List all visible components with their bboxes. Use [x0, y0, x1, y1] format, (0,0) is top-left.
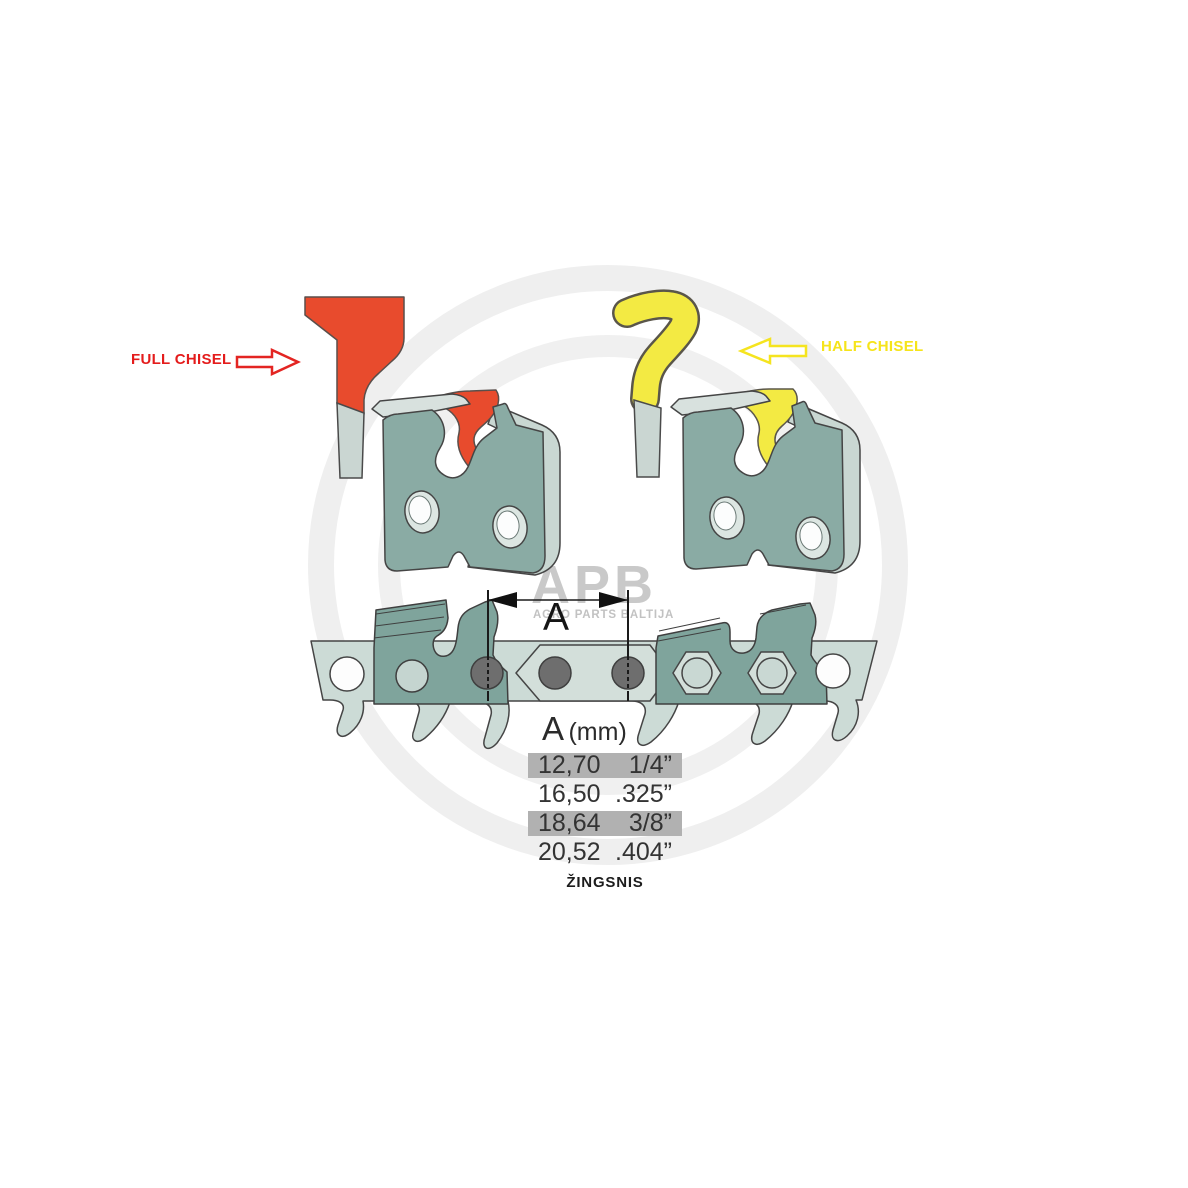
pitch-table-header-unit: (mm) [568, 718, 626, 746]
pitch-row: 20,52 .404” [528, 840, 682, 865]
pitch-table-header: A (mm) [528, 712, 682, 747]
half-chisel-arrow-icon [741, 339, 806, 363]
pitch-table: A (mm) 12,70 1/4” 16,50 .325” 18,64 3/8”… [528, 712, 682, 891]
product-diagram-canvas: APB AGRO PARTS BALTIJA [0, 0, 1188, 1188]
pitch-mm-value: 16,50 [538, 782, 601, 807]
pitch-inch-value: .325” [615, 782, 672, 807]
pitch-caption: ŽINGSNIS [528, 874, 682, 891]
chain-artwork-svg [0, 0, 1188, 1188]
full-chisel-arrow-icon [237, 350, 298, 374]
pitch-row: 12,70 1/4” [528, 753, 682, 778]
pitch-mm-value: 12,70 [538, 753, 601, 778]
dimension-arrow-right-icon [599, 592, 628, 608]
pitch-mm-value: 18,64 [538, 811, 601, 836]
pitch-table-header-symbol: A [542, 710, 564, 747]
pitch-inch-value: 3/8” [629, 811, 672, 836]
pitch-mm-value: 20,52 [538, 840, 601, 865]
pitch-inch-value: .404” [615, 840, 672, 865]
chain-rivets [471, 657, 644, 689]
half-chisel-label: HALF CHISEL [821, 338, 923, 355]
pitch-dimension-label: A [543, 596, 569, 640]
full-chisel-cutter-link [372, 390, 560, 575]
half-chisel-profile [627, 304, 685, 477]
chain-cutter-right [656, 603, 827, 704]
full-chisel-label: FULL CHISEL [131, 351, 232, 368]
pitch-row: 18,64 3/8” [528, 811, 682, 836]
half-chisel-cutter-link [671, 389, 860, 573]
pitch-row: 16,50 .325” [528, 782, 682, 807]
pitch-inch-value: 1/4” [629, 753, 672, 778]
